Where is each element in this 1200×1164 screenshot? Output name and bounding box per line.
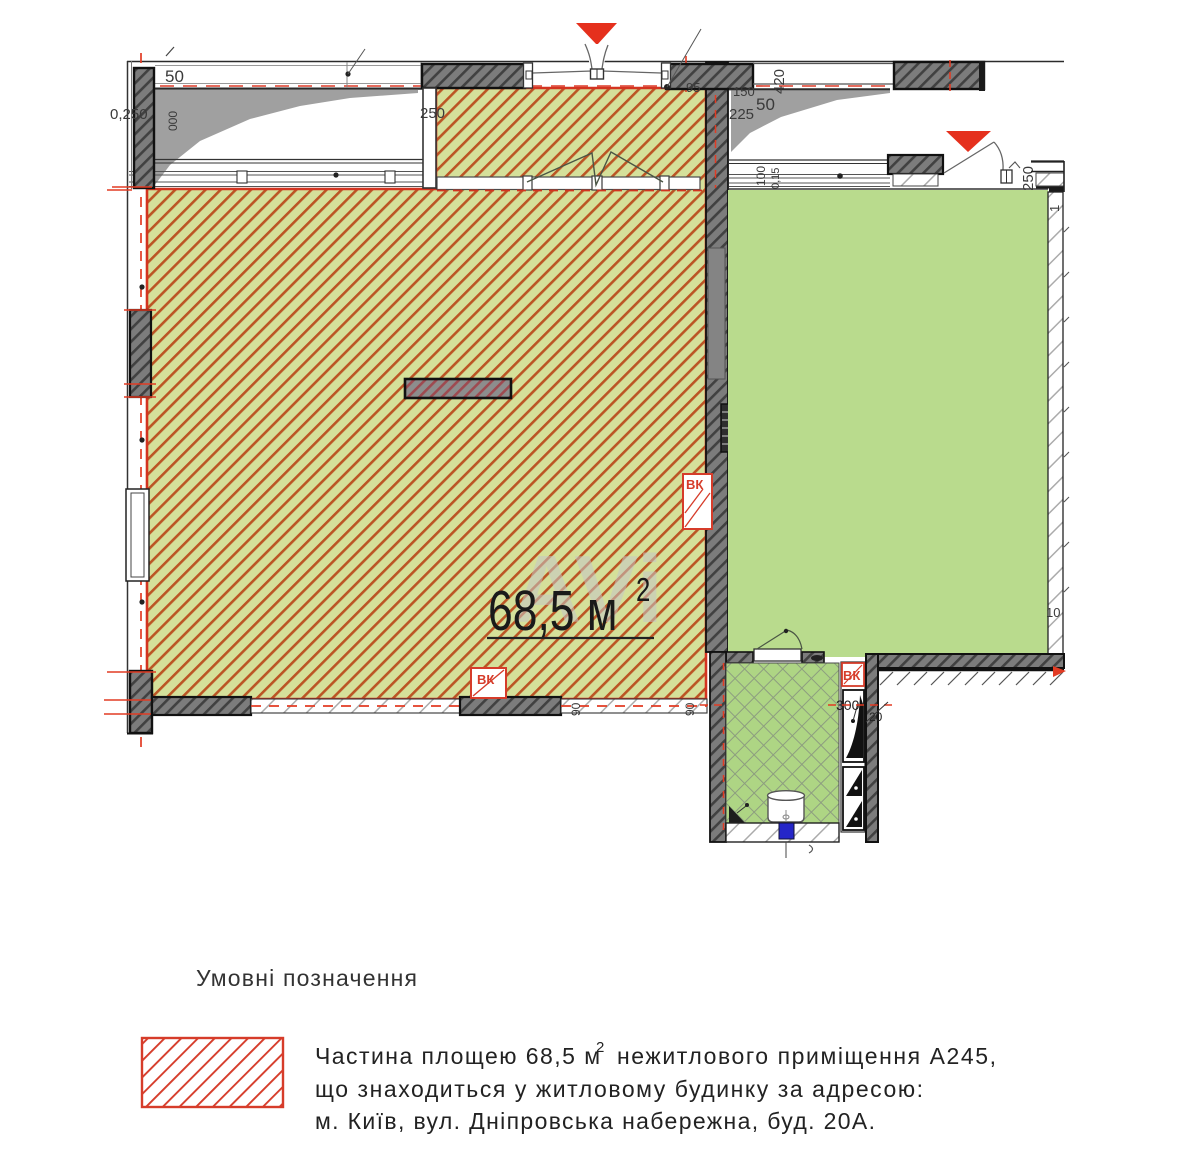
svg-text:250: 250 [1020, 166, 1037, 191]
svg-text:0,250: 0,250 [110, 106, 148, 123]
svg-text:нежитлового приміщення А245,: нежитлового приміщення А245, [617, 1043, 996, 1069]
svg-text:95: 95 [686, 80, 700, 95]
svg-text:1: 1 [1047, 205, 1062, 212]
svg-text:000: 000 [166, 111, 180, 131]
svg-text:420: 420 [771, 69, 788, 94]
svg-text:50: 50 [165, 67, 184, 86]
svg-text:ВК: ВК [686, 477, 703, 492]
svg-text:що знаходиться у житловому буд: що знаходиться у житловому будинку за ад… [315, 1076, 923, 1102]
svg-text:50: 50 [756, 95, 775, 114]
svg-text:90: 90 [569, 702, 583, 716]
svg-text:150: 150 [733, 84, 755, 99]
svg-text:100: 100 [754, 166, 768, 186]
svg-text:2: 2 [636, 572, 650, 609]
svg-text:225: 225 [729, 106, 754, 123]
svg-text:90: 90 [683, 702, 697, 716]
svg-text:68,5 м: 68,5 м [488, 579, 617, 643]
svg-text:2: 2 [596, 1039, 604, 1056]
svg-text:Умовні позначення: Умовні позначення [196, 965, 417, 991]
svg-text:10: 10 [1046, 605, 1060, 620]
svg-text:250: 250 [420, 105, 445, 122]
svg-text:м. Київ, вул. Дніпровська набе: м. Київ, вул. Дніпровська набережна, буд… [315, 1108, 875, 1134]
svg-text:0,15: 0,15 [770, 168, 782, 189]
